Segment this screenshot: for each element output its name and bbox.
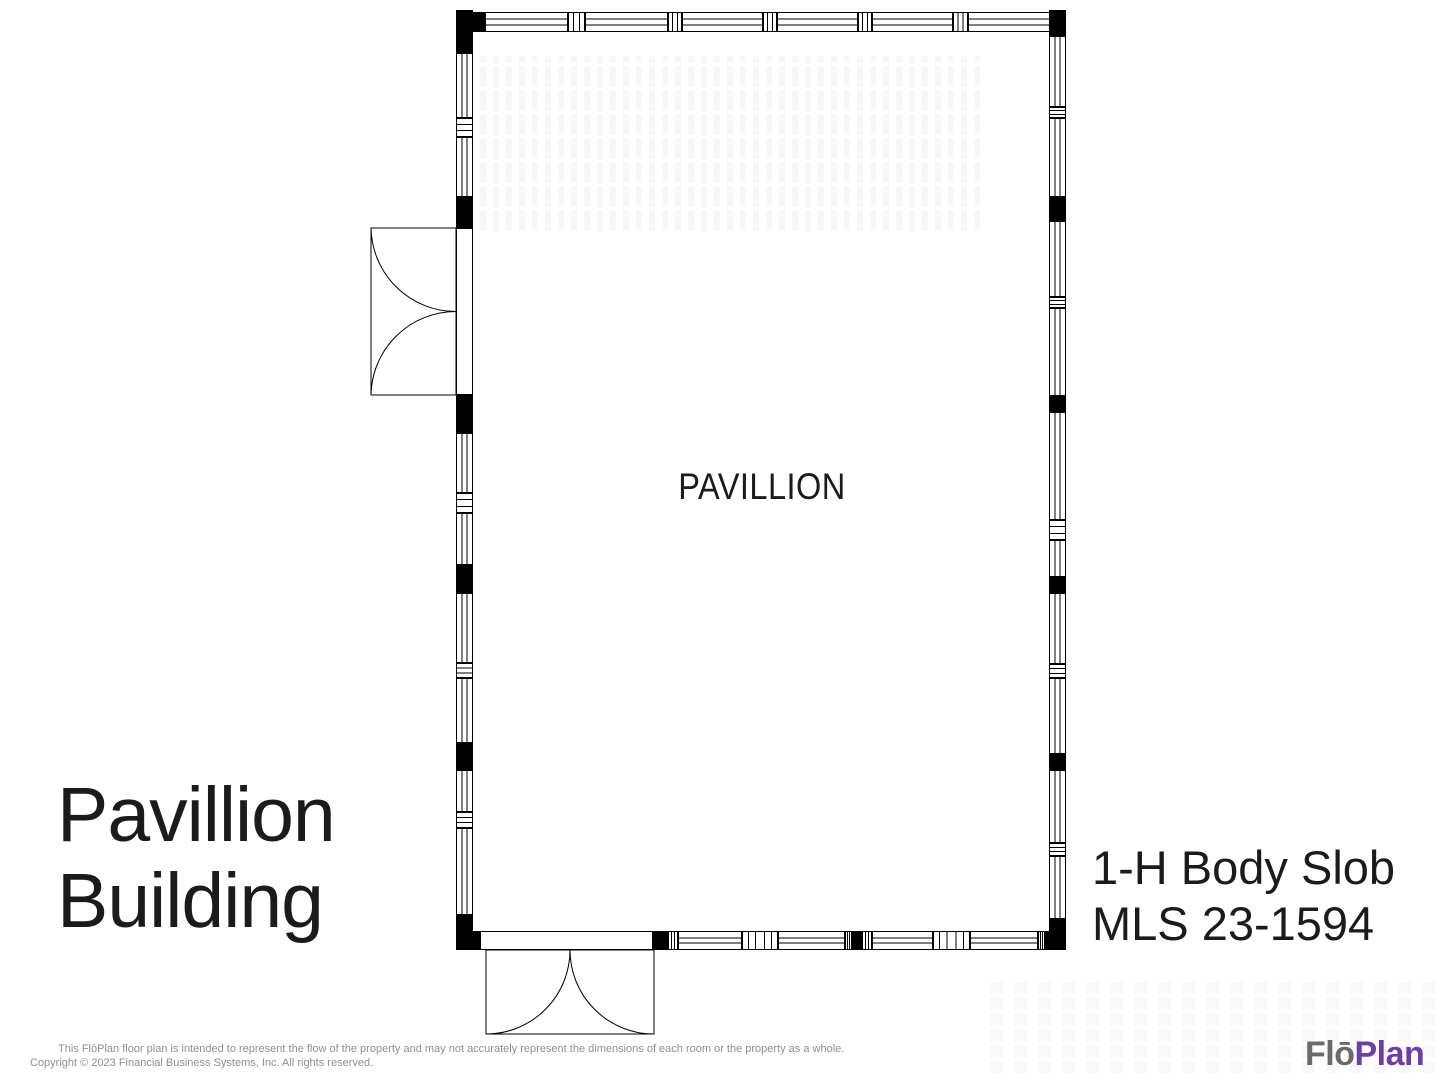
listing-line1: 1-H Body Slob [1092,840,1395,896]
listing-info: 1-H Body Slob MLS 23-1594 [1092,840,1395,952]
logo-flo: Flō [1305,1035,1354,1073]
door-side-double-door [371,228,456,395]
listing-line2: MLS 23-1594 [1092,896,1395,952]
wall-left [456,10,473,950]
room-label: PAVILLION [678,466,845,508]
wall-top [456,12,1066,32]
plan-title: Pavillion Building [57,772,335,944]
disclaimer: This FlōPlan floor plan is intended to r… [30,1043,844,1070]
disclaimer-line1: This FlōPlan floor plan is intended to r… [30,1043,844,1057]
wall-right [1049,10,1066,950]
logo-plan: Plan [1354,1035,1424,1073]
plan-title-line2: Building [57,858,335,944]
door-entry-double-door [486,950,654,1034]
wall-bottom [456,931,1066,950]
copyright-line: Copyright © 2023 Financial Business Syst… [30,1057,844,1071]
floplan-logo: FlōPlan [1305,1035,1424,1074]
plan-title-line1: Pavillion [57,772,335,858]
floor-plan-page: PAVILLION Pavillion Building 1-H Body Sl… [0,0,1440,1080]
